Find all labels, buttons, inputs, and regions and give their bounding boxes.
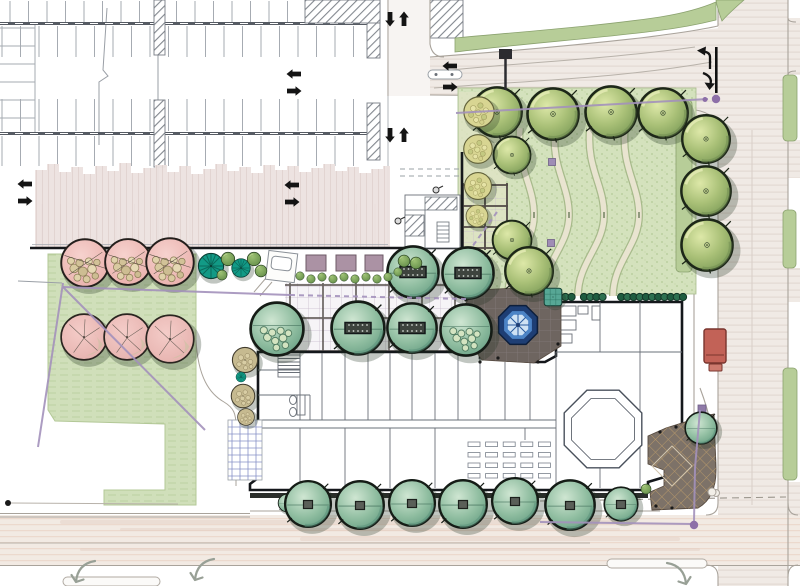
greenBall-tree <box>340 273 348 281</box>
table-seat <box>458 275 460 277</box>
oliveBubble-tree <box>231 384 255 408</box>
fountain-center <box>516 323 520 327</box>
table-seat <box>420 330 422 332</box>
yellowShrub-tree <box>465 173 492 200</box>
table-seat <box>417 274 419 276</box>
hedge-shrub <box>599 293 606 300</box>
table-seat <box>412 274 414 276</box>
kiosk <box>265 250 297 282</box>
tree-planter <box>356 502 365 510</box>
tealFan-tree <box>236 372 246 382</box>
table-seat <box>421 274 423 276</box>
table-seat <box>411 324 413 326</box>
table-seat <box>362 330 364 332</box>
desk <box>521 474 533 479</box>
table-seat <box>476 275 478 277</box>
hedge-shrub <box>568 293 575 300</box>
property-corner-dot <box>690 521 698 529</box>
table-seat <box>357 330 359 332</box>
table-seat <box>348 324 350 326</box>
desk <box>538 453 550 458</box>
table-seat <box>362 324 364 326</box>
desk <box>521 453 533 458</box>
desk <box>503 453 515 458</box>
greenBall-tree <box>217 270 227 280</box>
table-seat <box>366 324 368 326</box>
mauve-planter <box>365 255 383 271</box>
desk <box>468 474 480 479</box>
greenBall-tree <box>394 268 402 276</box>
greenBall-tree <box>351 275 359 283</box>
greenBall-tree <box>329 275 337 283</box>
table-seat <box>407 324 409 326</box>
pinkB-tree <box>104 314 150 360</box>
parkway-grass <box>783 75 797 141</box>
desk <box>538 442 550 447</box>
gate-island <box>428 70 462 79</box>
table-seat <box>472 275 474 277</box>
oliveBubble-tree <box>238 409 255 426</box>
table-seat <box>403 274 405 276</box>
sage-tree <box>685 412 717 444</box>
table-seat <box>463 275 465 277</box>
table-seat <box>402 324 404 326</box>
yellowShrub-tree <box>466 205 488 227</box>
pinkA-tree <box>146 238 194 286</box>
table-seat <box>467 269 469 271</box>
tree-planter <box>459 501 468 509</box>
table-seat <box>472 269 474 271</box>
greenBall-tree <box>384 273 392 281</box>
hedge-shrub <box>679 293 686 300</box>
table-seat <box>467 275 469 277</box>
table-seat <box>366 330 368 332</box>
greenBall-tree <box>255 265 267 277</box>
table-seat <box>403 268 405 270</box>
southwest-trellis <box>228 420 262 480</box>
mauve-planter <box>336 255 356 271</box>
table-seat <box>463 269 465 271</box>
table-seat <box>420 324 422 326</box>
desk <box>468 442 480 447</box>
greenBall-tree <box>362 273 370 281</box>
pinkB-tree <box>61 314 107 360</box>
tree-planter <box>511 498 520 506</box>
parkway-grass <box>783 368 797 480</box>
greenBall-tree <box>373 275 381 283</box>
desk <box>486 453 498 458</box>
survey-point <box>5 500 11 506</box>
table-seat <box>458 269 460 271</box>
desk <box>503 463 515 468</box>
greenBall-tree <box>247 252 260 265</box>
greenBall-tree <box>318 273 326 281</box>
pinkA-tree <box>61 239 109 287</box>
mauve-planter <box>306 255 326 271</box>
greenBall-tree <box>641 484 651 494</box>
tree-planter <box>566 502 575 510</box>
tree-planter <box>304 501 313 509</box>
desk <box>468 453 480 458</box>
desk <box>486 442 498 447</box>
site-plan-drawing <box>0 0 800 586</box>
greenBall-tree <box>398 255 410 267</box>
greenBall-tree <box>410 257 422 269</box>
table-seat <box>357 324 359 326</box>
lawn-purple-square <box>549 159 556 166</box>
sageShrub-tree <box>440 304 491 355</box>
hedge-row <box>549 293 686 300</box>
tree-planter <box>408 500 417 508</box>
greenBall-tree <box>296 272 304 280</box>
desk <box>503 442 515 447</box>
hatched-island <box>367 103 380 160</box>
tree-planter <box>617 501 626 509</box>
table-seat <box>407 330 409 332</box>
table-seat <box>402 330 404 332</box>
pinkB-tree <box>146 315 194 363</box>
site-plan-stage <box>0 0 800 586</box>
hatched-island <box>305 0 380 23</box>
hatched-island <box>154 100 165 167</box>
nw-driveway <box>389 0 430 96</box>
table-seat <box>353 324 355 326</box>
hatched-island <box>430 0 463 38</box>
desk <box>521 463 533 468</box>
desk <box>538 474 550 479</box>
oliveBubble-tree <box>232 347 257 372</box>
greenBall-tree <box>307 275 315 283</box>
table-seat <box>353 330 355 332</box>
property-corner-dot <box>712 95 720 103</box>
desk <box>538 463 550 468</box>
parkway-grass <box>783 210 796 268</box>
table-seat <box>421 268 423 270</box>
tealGrid-tree <box>544 288 562 306</box>
table-seat <box>411 330 413 332</box>
table-seat <box>408 268 410 270</box>
table-seat <box>416 330 418 332</box>
hatched-island <box>154 0 165 55</box>
desk <box>521 442 533 447</box>
table-seat <box>416 324 418 326</box>
octagon-hall <box>564 390 642 468</box>
pinkA-tree <box>105 239 151 285</box>
sageShrub-tree <box>251 303 304 356</box>
lane-median-pill <box>607 559 707 568</box>
table-seat <box>408 274 410 276</box>
fountain <box>499 306 538 345</box>
property-corner-dot <box>703 97 708 102</box>
table-seat <box>348 330 350 332</box>
existing-building-shade <box>35 163 390 247</box>
lawn-purple-square <box>548 240 555 247</box>
desk <box>468 463 480 468</box>
desk <box>486 474 498 479</box>
desk <box>486 463 498 468</box>
yellowShrub-tree <box>464 135 493 164</box>
table-seat <box>476 269 478 271</box>
